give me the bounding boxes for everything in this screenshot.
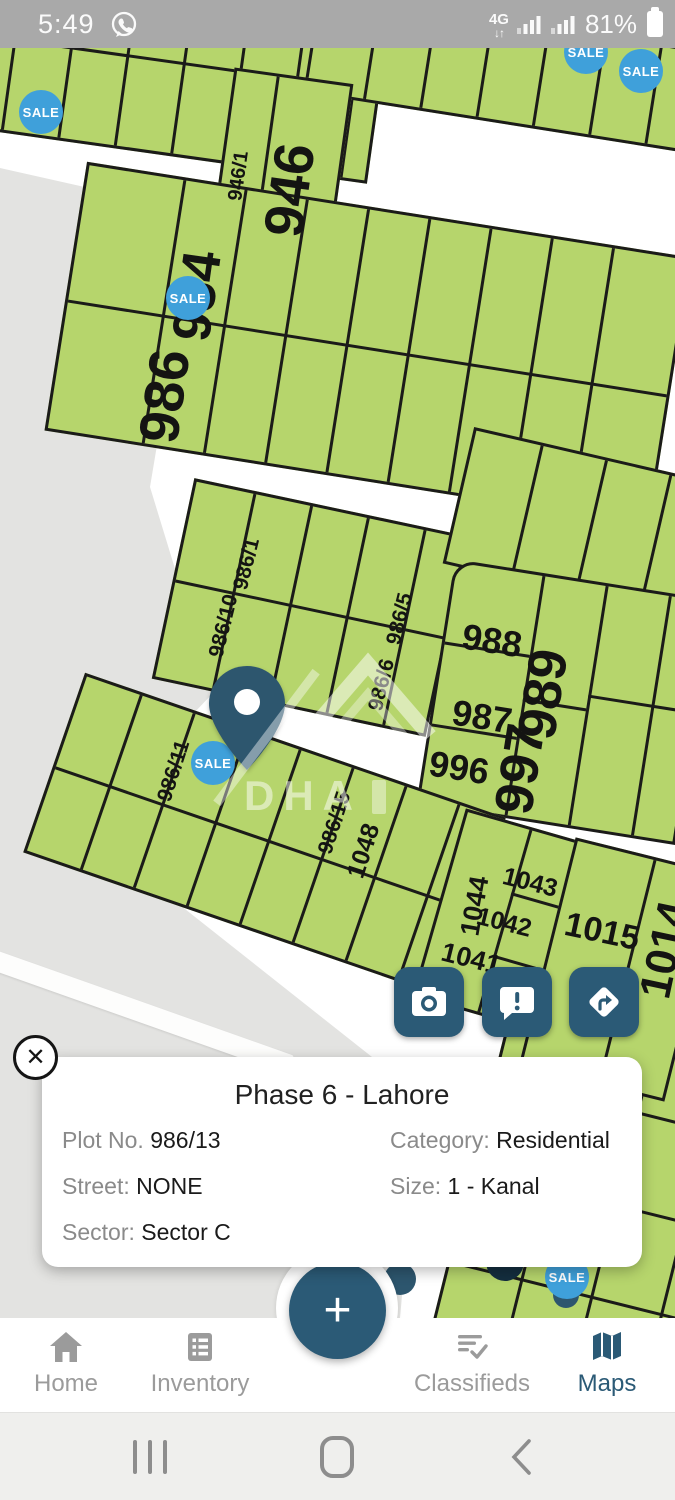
camera-button[interactable]	[394, 967, 464, 1037]
plot-info-card: Phase 6 - Lahore Plot No. 986/13 Categor…	[42, 1057, 642, 1267]
field-sector: Sector: Sector C	[62, 1219, 231, 1246]
field-label: Street:	[62, 1173, 130, 1199]
sale-badge[interactable]: SALE	[619, 49, 663, 93]
plot-label[interactable]: 946	[250, 139, 327, 241]
clock: 5:49	[38, 9, 95, 40]
field-plot-no: Plot No. 986/13	[62, 1127, 221, 1154]
field-label: Sector:	[62, 1219, 135, 1245]
close-icon: ✕	[25, 1046, 45, 1070]
location-pin-icon[interactable]	[209, 666, 285, 770]
feedback-icon	[499, 984, 535, 1020]
inventory-icon	[183, 1330, 217, 1364]
android-home-button[interactable]	[320, 1436, 354, 1478]
field-value: Sector C	[141, 1219, 230, 1245]
plus-icon: +	[323, 1283, 351, 1338]
mobile-data-icon: 4G↓↑	[489, 12, 509, 39]
nav-item-home[interactable]: Home	[0, 1318, 136, 1412]
sale-badge-label: SALE	[23, 105, 60, 120]
android-navigation-bar	[0, 1412, 675, 1500]
nav-label: Inventory	[151, 1370, 250, 1398]
sale-badge-label: SALE	[549, 1270, 586, 1285]
field-value: 1 - Kanal	[448, 1173, 540, 1199]
classifieds-icon	[454, 1330, 490, 1364]
nav-item-classifieds[interactable]: Classifieds	[402, 1318, 542, 1412]
field-value: Residential	[496, 1127, 610, 1153]
status-bar: 5:49 4G↓↑ 81%	[0, 0, 675, 48]
close-card-button[interactable]: ✕	[13, 1035, 58, 1080]
home-icon	[48, 1330, 84, 1364]
nav-item-maps[interactable]: Maps	[537, 1318, 675, 1412]
signal-strength-icon	[517, 13, 543, 35]
nav-label: Classifieds	[414, 1370, 530, 1398]
field-street: Street: NONE	[62, 1173, 203, 1200]
field-label: Plot No.	[62, 1127, 144, 1153]
plot-info-title: Phase 6 - Lahore	[42, 1079, 642, 1111]
battery-percent: 81%	[585, 9, 637, 40]
back-button[interactable]	[510, 1438, 532, 1476]
add-button[interactable]: +	[289, 1262, 386, 1359]
nav-label: Maps	[578, 1370, 637, 1398]
field-label: Category:	[390, 1127, 490, 1153]
nav-label: Home	[34, 1370, 98, 1398]
recent-apps-button[interactable]	[133, 1440, 167, 1474]
sale-badge-label: SALE	[170, 291, 207, 306]
phone-screen: 946/1 946 954 986 986/1 986/10 986/5 986…	[0, 0, 675, 1500]
signal-strength-icon	[551, 13, 577, 35]
field-label: Size:	[390, 1173, 441, 1199]
sale-badge-label: SALE	[623, 64, 660, 79]
directions-icon	[584, 982, 624, 1022]
battery-icon	[647, 11, 663, 37]
directions-button[interactable]	[569, 967, 639, 1037]
plot-label[interactable]: 986	[125, 345, 202, 447]
field-size: Size: 1 - Kanal	[390, 1173, 540, 1200]
field-category: Category: Residential	[390, 1127, 610, 1154]
feedback-button[interactable]	[482, 967, 552, 1037]
camera-icon	[410, 985, 448, 1019]
field-value: NONE	[136, 1173, 202, 1199]
nav-item-inventory[interactable]: Inventory	[130, 1318, 270, 1412]
maps-icon	[590, 1330, 624, 1364]
whatsapp-notification-icon	[109, 10, 139, 40]
sale-badge[interactable]: SALE	[19, 90, 63, 134]
sale-badge[interactable]: SALE	[166, 276, 210, 320]
field-value: 986/13	[150, 1127, 220, 1153]
